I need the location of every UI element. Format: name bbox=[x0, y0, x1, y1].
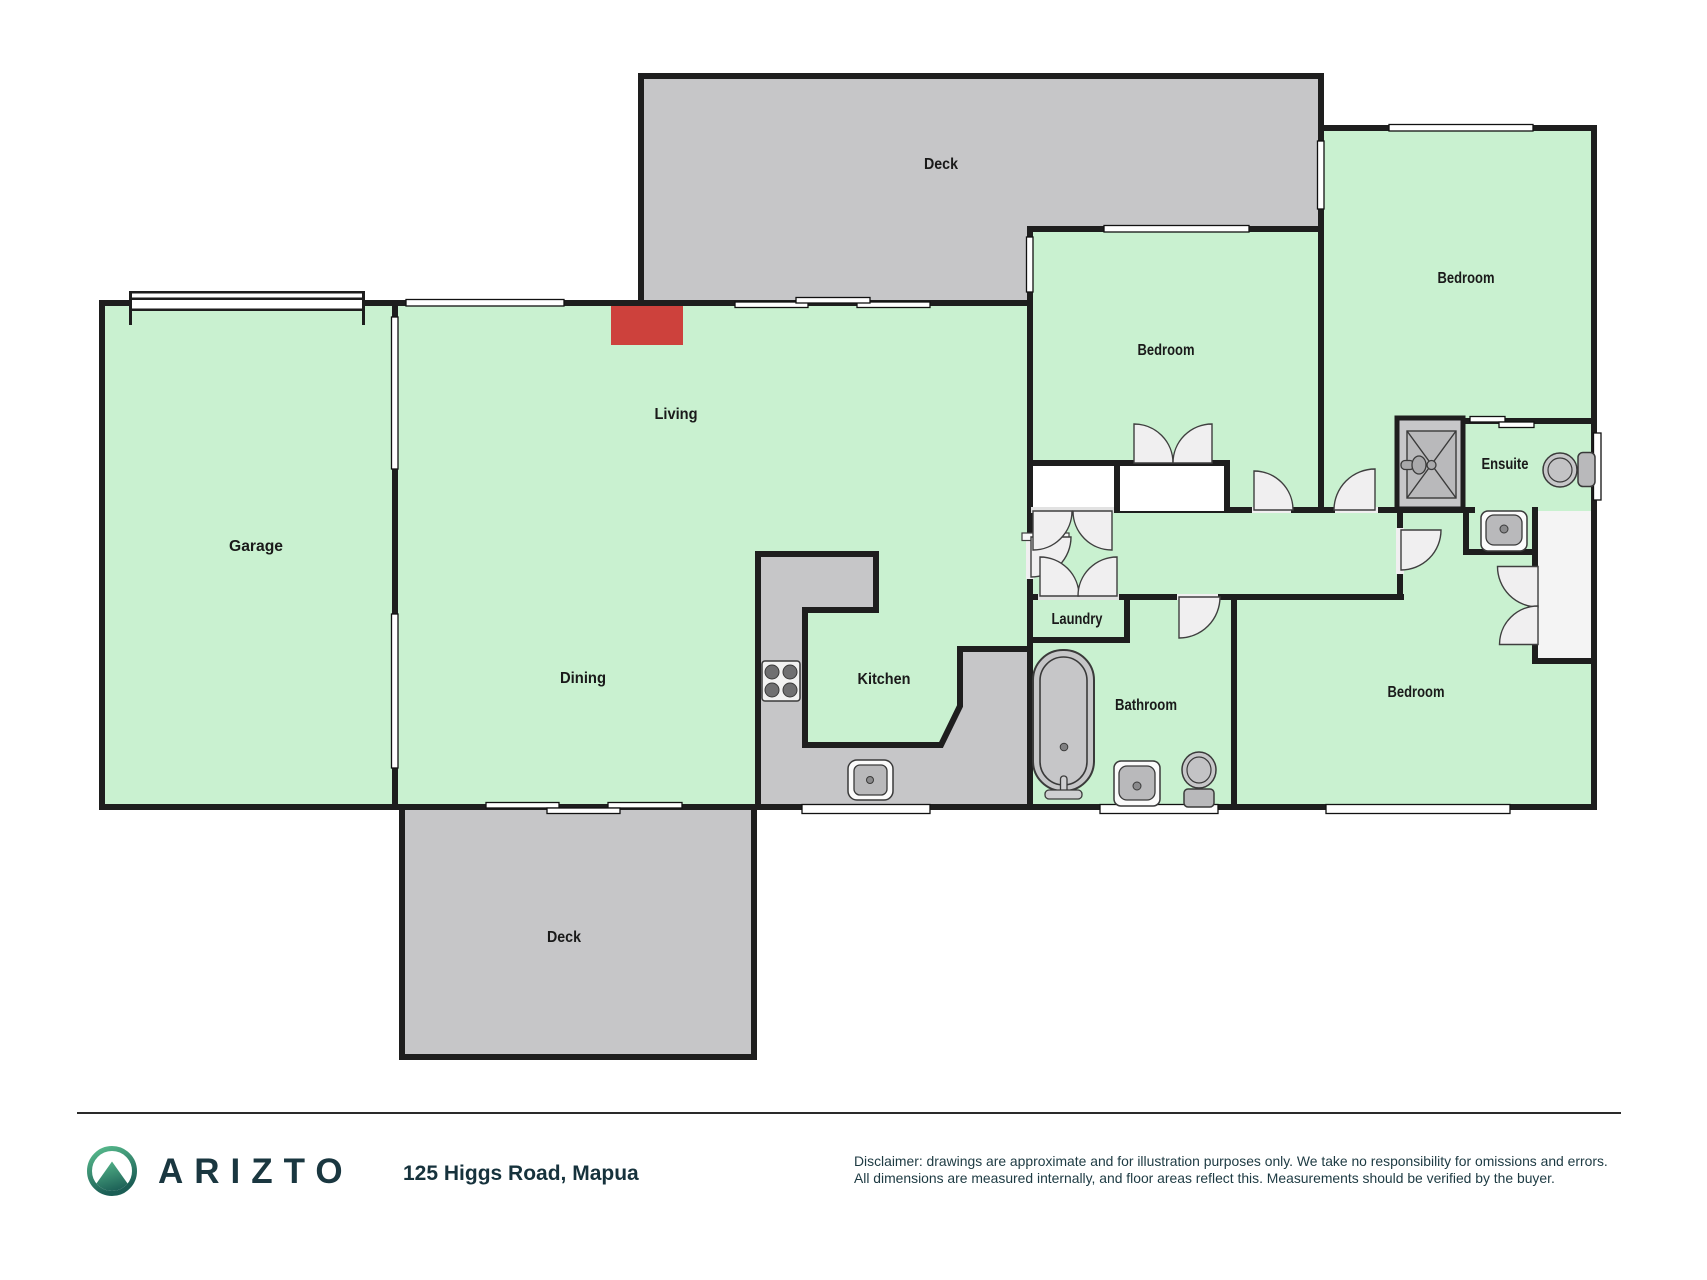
svg-text:Kitchen: Kitchen bbox=[858, 671, 911, 688]
svg-text:Bedroom: Bedroom bbox=[1138, 342, 1195, 359]
svg-text:Living: Living bbox=[655, 406, 698, 423]
svg-text:Dining: Dining bbox=[560, 670, 606, 687]
svg-text:ARIZTO: ARIZTO bbox=[158, 1152, 354, 1191]
svg-text:Disclaimer: drawings are appro: Disclaimer: drawings are approximate and… bbox=[854, 1153, 1608, 1169]
svg-text:Ensuite: Ensuite bbox=[1482, 456, 1529, 473]
svg-text:Bathroom: Bathroom bbox=[1115, 697, 1177, 714]
svg-text:Deck: Deck bbox=[547, 929, 581, 946]
svg-text:Bedroom: Bedroom bbox=[1388, 684, 1445, 701]
svg-text:Bedroom: Bedroom bbox=[1438, 270, 1495, 287]
svg-text:125 Higgs Road, Mapua: 125 Higgs Road, Mapua bbox=[403, 1162, 639, 1185]
svg-text:Garage: Garage bbox=[229, 538, 283, 555]
svg-text:All dimensions are measured in: All dimensions are measured internally, … bbox=[854, 1170, 1555, 1186]
svg-text:Deck: Deck bbox=[924, 156, 958, 173]
svg-text:Laundry: Laundry bbox=[1052, 611, 1103, 628]
